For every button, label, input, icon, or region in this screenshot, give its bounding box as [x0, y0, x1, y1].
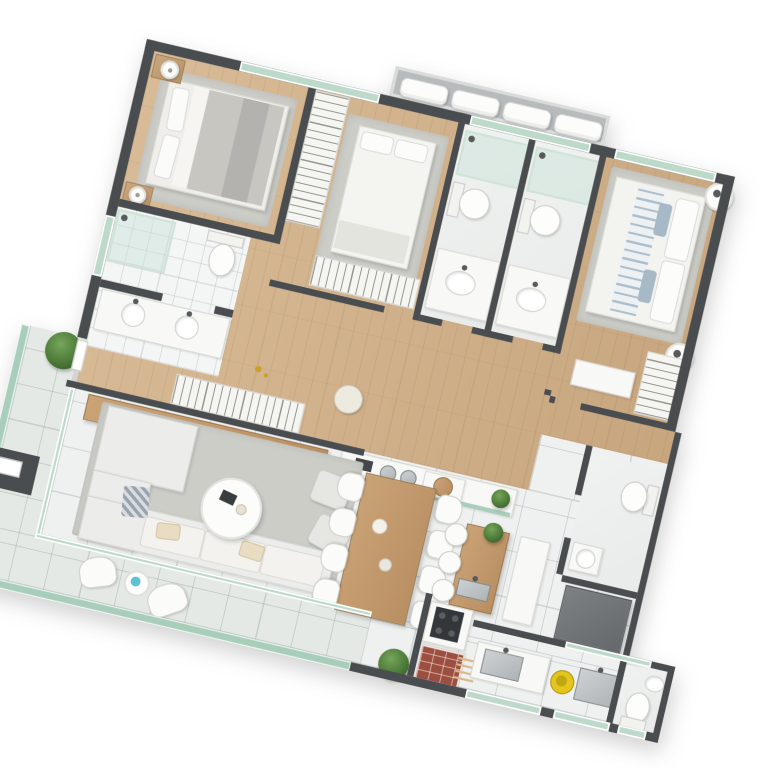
- sofa-throw-blanket: [121, 485, 150, 518]
- wall-bath3-master-stub: [544, 389, 552, 396]
- lounge-chair: [77, 555, 118, 590]
- floorplan-render: [0, 0, 768, 743]
- sofa-pillow-cream: [155, 522, 181, 541]
